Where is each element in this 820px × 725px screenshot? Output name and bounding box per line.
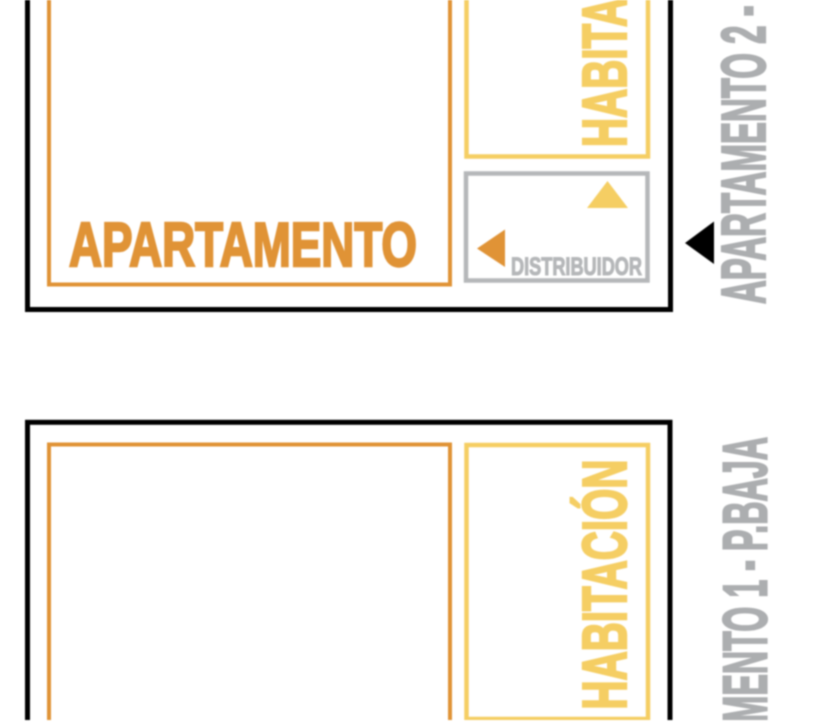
svg-text:HABITACIÓN: HABITACIÓN	[571, 0, 640, 147]
svg-text:DISTRIBUIDOR: DISTRIBUIDOR	[511, 253, 642, 281]
svg-text:APARTAMENTO: APARTAMENTO	[69, 211, 417, 280]
svg-text:APARTAMENTO 2 - P.1: APARTAMENTO 2 - P.1	[710, 0, 779, 304]
svg-text:HABITACIÓN: HABITACIÓN	[571, 460, 640, 710]
svg-text:APARTAMENTO 1 - P.BAJA: APARTAMENTO 1 - P.BAJA	[712, 437, 781, 720]
